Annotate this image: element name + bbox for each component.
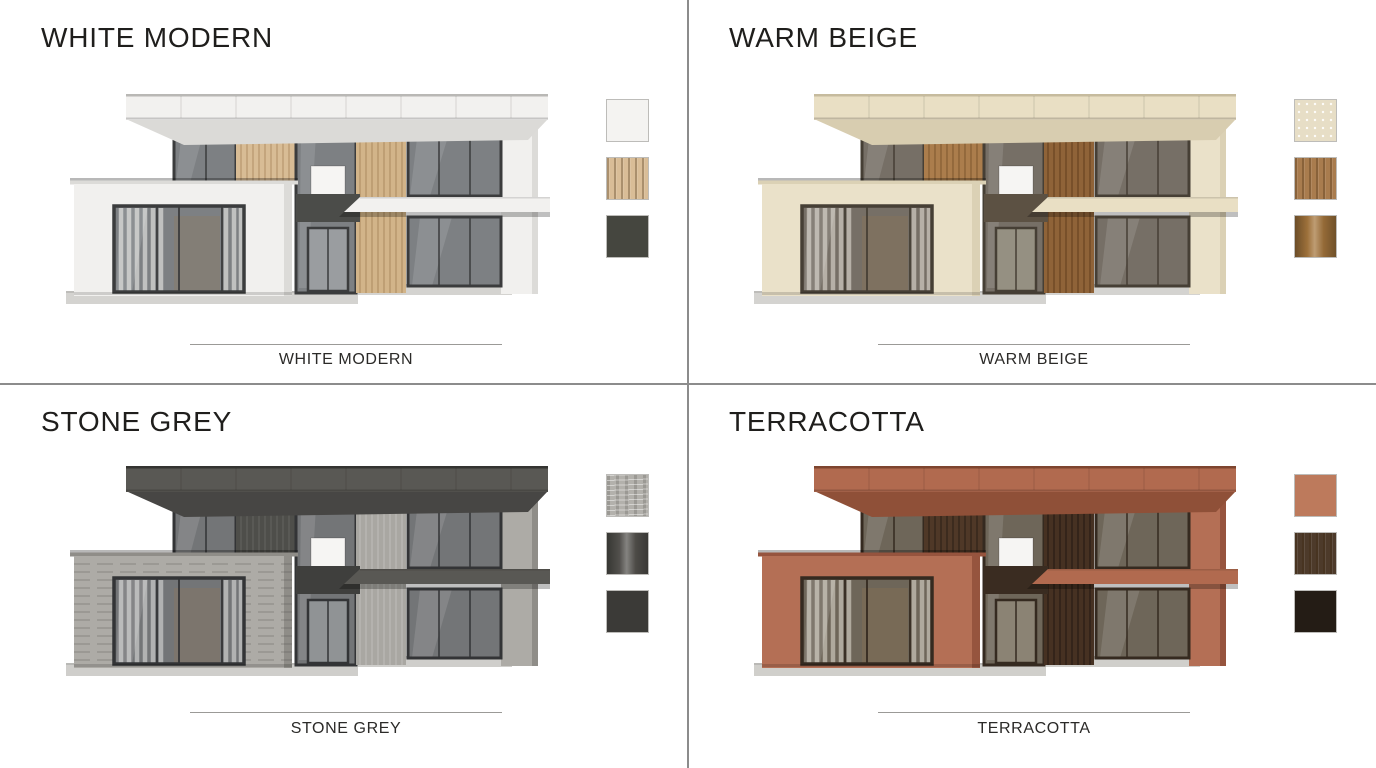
house-render — [746, 460, 1246, 690]
palette-swatch-accent — [606, 215, 649, 258]
house-illustration — [746, 88, 1246, 318]
palette-swatch-accent — [606, 590, 649, 633]
house-illustration — [746, 460, 1246, 690]
variant-caption: WARM BEIGE — [878, 351, 1190, 369]
variant-caption: TERRACOTTA — [878, 720, 1190, 738]
palette-swatches — [1294, 474, 1337, 633]
palette-swatches — [606, 99, 649, 258]
caption-divider — [878, 344, 1190, 345]
palette-swatch-accent — [1294, 590, 1337, 633]
palette-swatch-wood — [1294, 532, 1337, 575]
variant-title: STONE GREY — [41, 406, 232, 438]
variant-caption: STONE GREY — [190, 720, 502, 738]
caption-divider — [190, 344, 502, 345]
house-illustration — [58, 460, 558, 690]
variant-card-stone-grey: STONE GREY — [0, 384, 688, 768]
palette-swatch-accent — [1294, 215, 1337, 258]
caption-divider — [878, 712, 1190, 713]
house-render — [58, 460, 558, 690]
palette-swatches — [1294, 99, 1337, 258]
palette-swatch-wood — [606, 157, 649, 200]
palette-swatch-facade — [1294, 99, 1337, 142]
variant-title: WARM BEIGE — [729, 22, 918, 54]
house-render — [746, 88, 1246, 318]
horizontal-grid-divider — [0, 383, 1376, 385]
house-render — [58, 88, 558, 318]
palette-swatch-facade — [606, 99, 649, 142]
variant-card-warm-beige: WARM BEIGE — [688, 0, 1376, 384]
facade-comparison-board: WHITE MODERN — [0, 0, 1376, 768]
palette-swatch-facade — [1294, 474, 1337, 517]
variant-title: TERRACOTTA — [729, 406, 925, 438]
palette-swatch-wood — [1294, 157, 1337, 200]
caption-divider — [190, 712, 502, 713]
variant-title: WHITE MODERN — [41, 22, 273, 54]
variant-card-terracotta: TERRACOTTA — [688, 384, 1376, 768]
variant-caption: WHITE MODERN — [190, 351, 502, 369]
variant-card-white-modern: WHITE MODERN — [0, 0, 688, 384]
palette-swatches — [606, 474, 649, 633]
house-illustration — [58, 88, 558, 318]
palette-swatch-facade — [606, 474, 649, 517]
palette-swatch-wood — [606, 532, 649, 575]
